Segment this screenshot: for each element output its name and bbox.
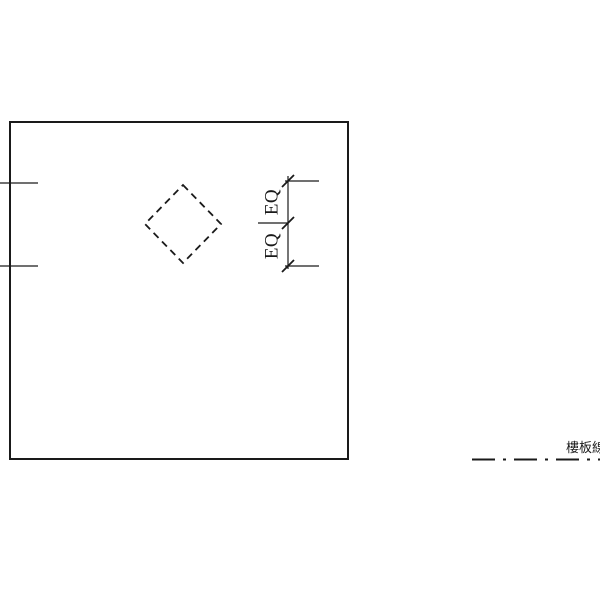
left-reference-lines bbox=[0, 183, 38, 266]
plan-outline-square bbox=[10, 122, 348, 459]
eq-label-top: EQ bbox=[261, 189, 282, 215]
opening-diamond-dashed bbox=[145, 185, 221, 263]
cad-drawing-canvas: EQ EQ 樓板線 bbox=[0, 0, 600, 600]
slab-line-label: 樓板線 bbox=[566, 441, 600, 454]
cad-drawing: EQ EQ bbox=[0, 0, 600, 600]
eq-label-bottom: EQ bbox=[261, 233, 282, 259]
eq-dimension: EQ EQ bbox=[258, 175, 319, 272]
